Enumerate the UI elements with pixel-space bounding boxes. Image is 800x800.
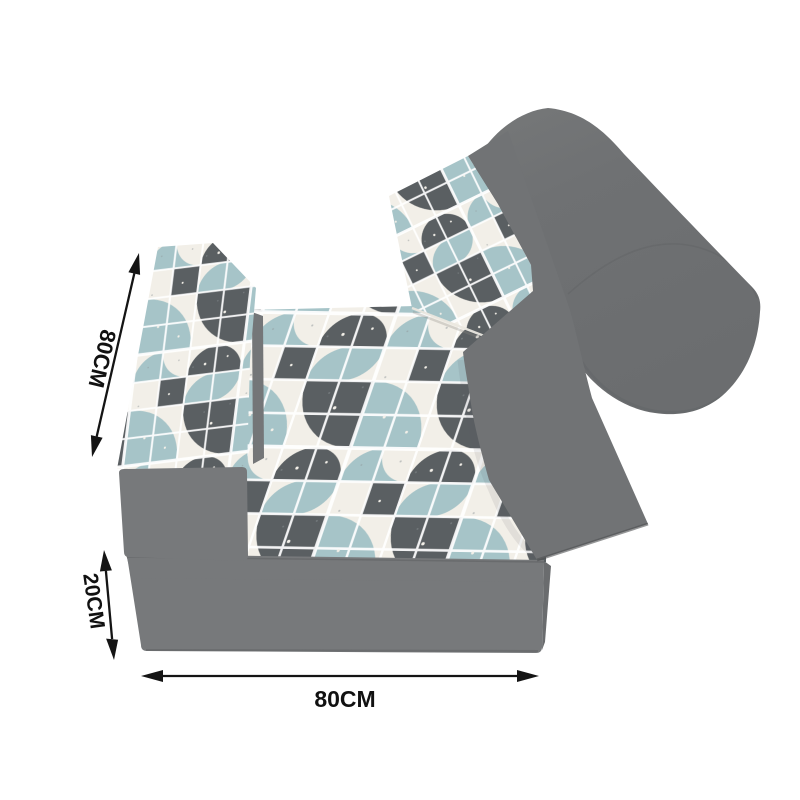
svg-text:20CM: 20CM xyxy=(78,572,109,631)
svg-text:80CM: 80CM xyxy=(314,686,375,712)
svg-text:80CM: 80CM xyxy=(84,327,122,390)
